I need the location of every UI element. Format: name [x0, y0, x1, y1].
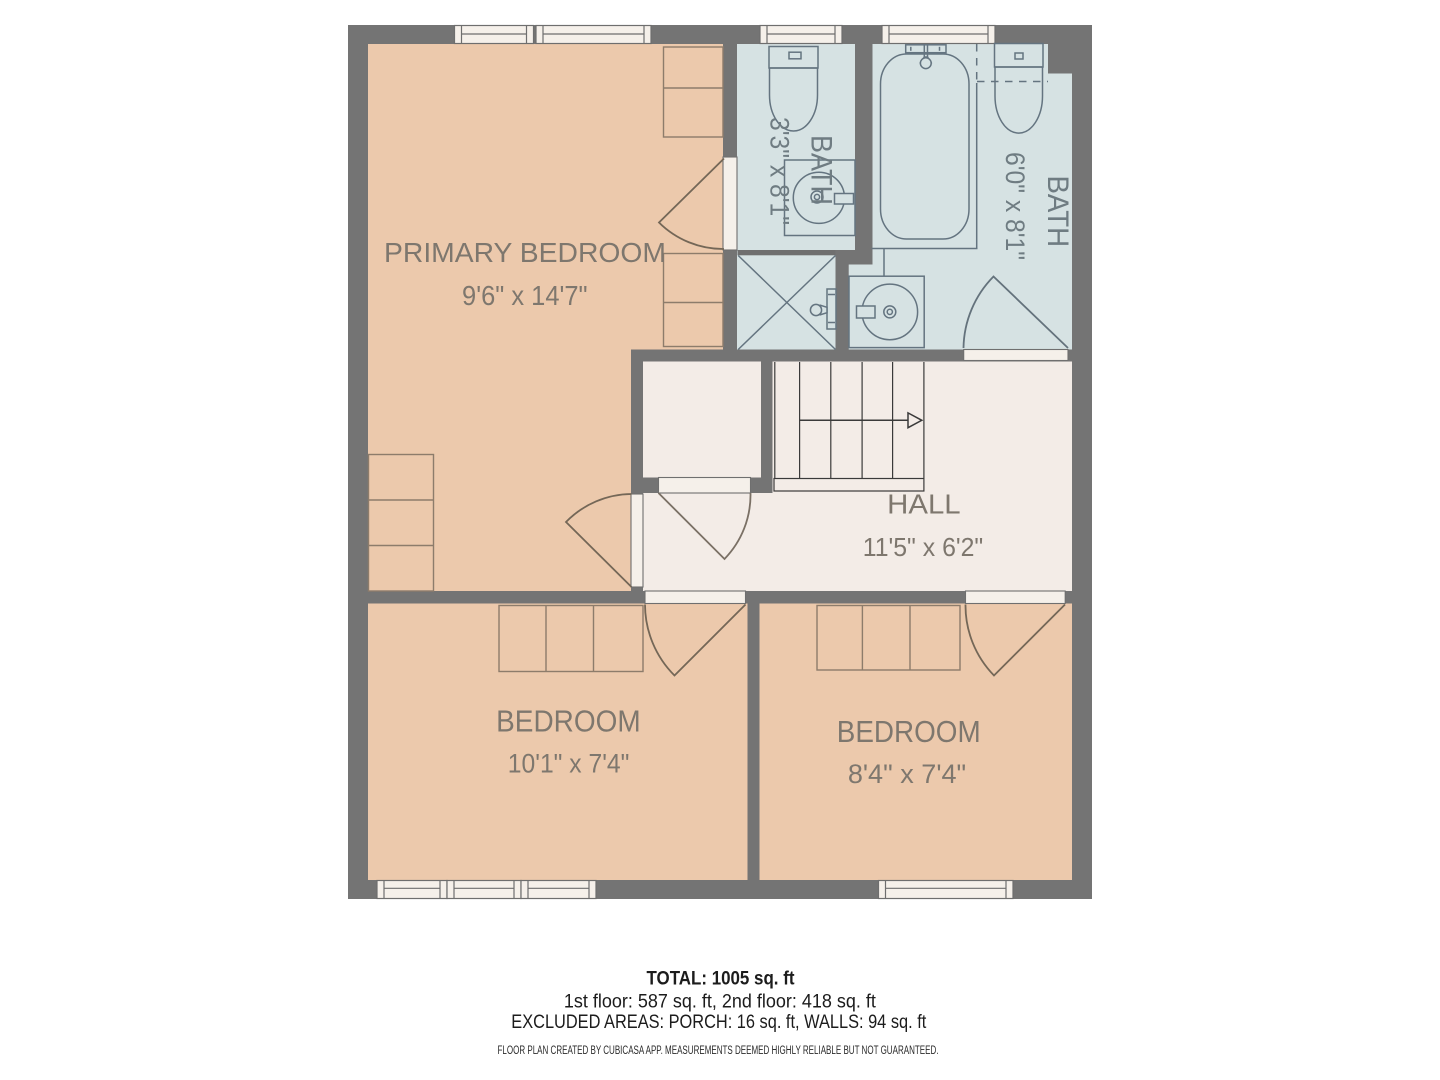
svg-text:9'6" x 14'7": 9'6" x 14'7"	[462, 280, 588, 311]
svg-text:6'0" x 8'1": 6'0" x 8'1"	[1000, 152, 1030, 260]
svg-text:10'1" x 7'4": 10'1" x 7'4"	[508, 748, 630, 778]
svg-text:FLOOR PLAN CREATED BY CUBICASA: FLOOR PLAN CREATED BY CUBICASA APP. MEAS…	[498, 1043, 939, 1057]
svg-text:1st floor: 587 sq. ft, 2nd flo: 1st floor: 587 sq. ft, 2nd floor: 418 sq…	[564, 991, 876, 1013]
svg-text:HALL: HALL	[887, 489, 960, 520]
svg-text:3'3" x 8'1": 3'3" x 8'1"	[765, 117, 795, 225]
svg-text:BEDROOM: BEDROOM	[496, 704, 641, 739]
svg-text:BATH: BATH	[804, 135, 837, 205]
svg-text:BEDROOM: BEDROOM	[837, 714, 981, 749]
svg-text:PRIMARY BEDROOM: PRIMARY BEDROOM	[384, 237, 666, 268]
svg-text:BATH: BATH	[1041, 176, 1074, 248]
svg-text:11'5" x 6'2": 11'5" x 6'2"	[863, 532, 984, 562]
svg-text:TOTAL: 1005 sq. ft: TOTAL: 1005 sq. ft	[647, 968, 795, 990]
svg-text:8'4" x 7'4": 8'4" x 7'4"	[848, 759, 966, 789]
svg-text:EXCLUDED AREAS: PORCH: 16 sq.: EXCLUDED AREAS: PORCH: 16 sq. ft, WALLS:…	[511, 1011, 926, 1033]
